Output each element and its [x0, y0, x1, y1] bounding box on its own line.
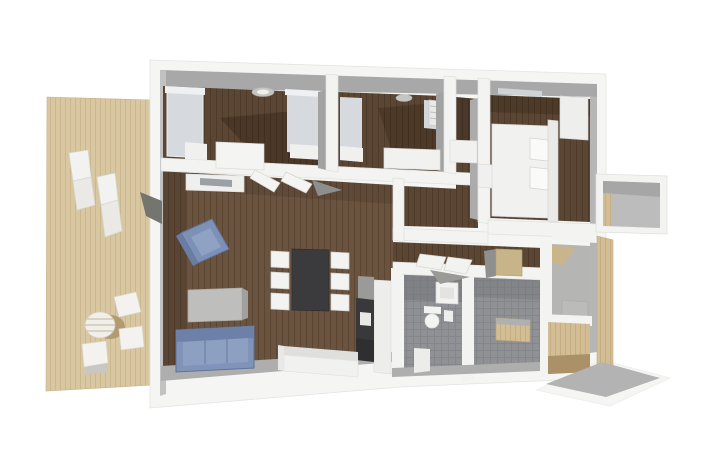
- dining-chair: [271, 251, 289, 268]
- wood-wall-panel: [597, 236, 613, 375]
- wall-hallway-west: [393, 178, 404, 242]
- floorplan-page: [0, 0, 712, 476]
- patio-chair-1: [114, 292, 141, 317]
- tv-cabinet-side: [242, 288, 248, 320]
- sun-lounger-2-back: [97, 173, 118, 205]
- master-bed-headboard: [548, 120, 558, 222]
- kitchen-counter-end: [278, 345, 284, 371]
- tv-cabinet: [188, 288, 242, 322]
- ceiling-light-1-core: [257, 90, 269, 95]
- master-nightstand: [478, 164, 492, 188]
- bedroom2-dresser-2: [450, 140, 477, 163]
- kitchen-base-unit: [356, 338, 374, 362]
- balcony-wood-floor: [603, 193, 611, 226]
- bathroom-shelf: [444, 310, 453, 322]
- bedroom2-window-sill: [340, 146, 363, 162]
- bedroom2-dresser-1: [384, 148, 440, 170]
- dining-chair: [271, 293, 289, 310]
- kitchen-wall: [374, 280, 391, 374]
- hallway-floor: [404, 186, 478, 228]
- dining-chair: [331, 252, 349, 269]
- shoe-cabinet-shadow: [484, 249, 496, 278]
- wall-bath-shower: [462, 266, 474, 382]
- toilet-tank: [424, 306, 441, 314]
- sofa-seat: [183, 338, 248, 366]
- dining-table: [292, 249, 329, 311]
- bathroom-sink-bowl: [440, 287, 454, 299]
- master-pillow-2: [530, 167, 548, 190]
- toilet-bowl: [425, 314, 439, 328]
- wall-bath-west: [391, 268, 402, 379]
- closet-frame-west: [540, 314, 548, 378]
- bedroom1-bed: [216, 142, 264, 170]
- dining-chair: [331, 273, 349, 290]
- dining-chair: [331, 294, 349, 311]
- bathroom-cabinet: [414, 348, 430, 373]
- dining-chair: [271, 272, 289, 289]
- floorplan-3d-render: [0, 0, 712, 476]
- wall-bedroom1-2-face: [318, 90, 326, 170]
- wall-hall-master: [478, 78, 490, 224]
- kitchen-oven: [360, 312, 371, 326]
- patio-chair-3: [82, 341, 108, 367]
- sun-lounger-2-seat: [101, 200, 122, 237]
- ceiling-light-2: [396, 95, 412, 102]
- wall-bedroom1-2: [326, 74, 338, 172]
- sun-lounger-1-back: [69, 150, 91, 181]
- sun-lounger-1-seat: [73, 177, 95, 210]
- master-wardrobe: [560, 96, 588, 140]
- patio-chair-2: [119, 326, 144, 350]
- master-pillow-1: [530, 138, 548, 161]
- shoe-cabinet: [496, 249, 522, 276]
- kitchen-tall-unit-top: [358, 276, 374, 300]
